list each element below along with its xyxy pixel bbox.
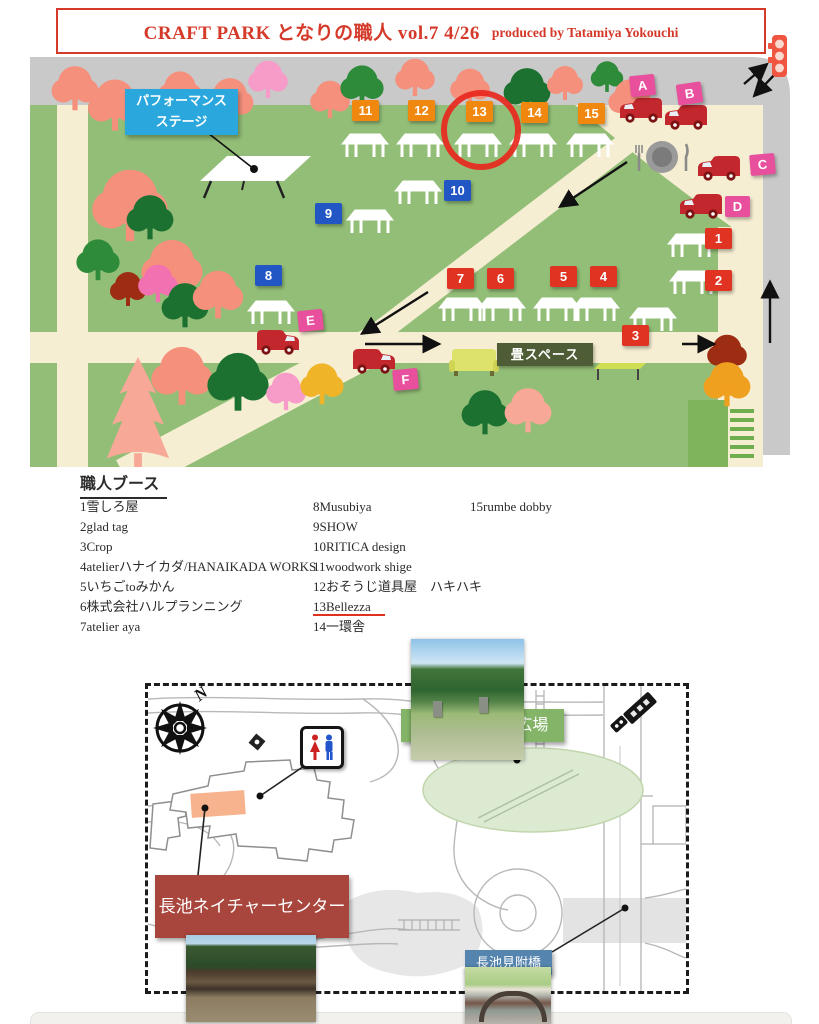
- vendor-item: 6株式会社ハルプランニング: [80, 597, 312, 617]
- vendor-item: 4atelierハナイカダ/HANAIKADA WORKS: [80, 557, 312, 577]
- booth-marker-D: D: [725, 196, 750, 217]
- stage-label-line2: ステージ: [125, 112, 238, 133]
- flyer-page: CRAFT PARK となりの職人 vol.7 4/26 produced by…: [0, 0, 819, 1024]
- vendor-list-title: 職人ブース: [80, 470, 167, 499]
- booth-marker-2: 2: [705, 270, 732, 291]
- vendor-item: 3Crop: [80, 537, 312, 557]
- booth-marker-B: B: [676, 81, 704, 105]
- booth-marker-F: F: [392, 368, 419, 391]
- booth-marker-6: 6: [487, 268, 514, 289]
- restroom-icon: [300, 726, 344, 769]
- tatami-space-label: 畳スペース: [497, 343, 593, 366]
- page-credit: produced by Tatamiya Yokouchi: [492, 21, 678, 41]
- building-outline: [150, 760, 354, 861]
- vendor-item: 10RITICA design: [313, 537, 549, 557]
- park-map: 11 12 13 14 15 10 9 8 7 6 5 4 1 2 3 A B …: [30, 57, 790, 467]
- booth-marker-3: 3: [622, 325, 649, 346]
- performance-stage-label: パフォーマンス ステージ: [125, 89, 238, 135]
- vendor-item: 1雪しろ屋: [80, 497, 312, 517]
- vendor-item: 14一環舎: [313, 617, 549, 637]
- vendor-column-3: 15rumbe dobby: [470, 497, 620, 517]
- vendor-item-bellezza: 13Bellezza: [313, 599, 385, 616]
- nature-center-photo: [186, 935, 316, 1022]
- booth-marker-13: 13: [466, 101, 493, 122]
- booth-marker-10: 10: [444, 180, 471, 201]
- vendor-item: 2glad tag: [80, 517, 312, 537]
- bus-stop-marker: [610, 691, 658, 733]
- booth-marker-12: 12: [408, 100, 435, 121]
- header-banner: CRAFT PARK となりの職人 vol.7 4/26 produced by…: [56, 8, 766, 54]
- vendor-item-highlighted: 13Bellezza: [313, 597, 549, 617]
- vendor-item: 15rumbe dobby: [470, 497, 620, 517]
- booth-marker-9: 9: [315, 203, 342, 224]
- pond-shape: [347, 890, 483, 976]
- bridge-photo: [465, 967, 551, 1024]
- vendor-column-1: 1雪しろ屋 2glad tag 3Crop 4atelierハナイカダ/HANA…: [80, 497, 312, 637]
- booth-marker-7: 7: [447, 268, 474, 289]
- booth-marker-1: 1: [705, 228, 732, 249]
- traffic-light-icon: [765, 31, 793, 87]
- page-bottom-band: [30, 1012, 792, 1024]
- booth-marker-15: 15: [578, 103, 605, 124]
- small-building-marker: [249, 734, 266, 751]
- booth-marker-11: 11: [352, 100, 379, 121]
- booth-marker-5: 5: [550, 266, 577, 287]
- stage-label-line1: パフォーマンス: [125, 91, 238, 112]
- restroom-male-figure: [326, 735, 333, 761]
- booth-marker-8: 8: [255, 265, 282, 286]
- booth-marker-E: E: [297, 309, 324, 332]
- vendor-column-2: 8Musubiya 9SHOW 10RITICA design 11woodwo…: [313, 497, 549, 637]
- booth-marker-A: A: [629, 74, 656, 97]
- vendor-item: 12おそうじ道具屋 ハキハキ: [313, 577, 549, 597]
- vendor-list: 職人ブース 1雪しろ屋 2glad tag 3Crop 4atelierハナイカ…: [80, 470, 770, 640]
- plaza-oval: [423, 748, 643, 832]
- location-map: N CRAFT PARK広場 長池ネイチャーセンター 長池見附橋: [145, 683, 689, 994]
- booth-marker-4: 4: [590, 266, 617, 287]
- vendor-item: 7atelier aya: [80, 617, 312, 637]
- vendor-item: 5いちごtoみかん: [80, 577, 312, 597]
- booth-marker-14: 14: [521, 102, 548, 123]
- nature-center-highlight: [190, 790, 246, 818]
- nature-center-label: 長池ネイチャーセンター: [155, 875, 349, 938]
- page-title: CRAFT PARK となりの職人 vol.7 4/26: [144, 18, 480, 45]
- vendor-item: 9SHOW: [313, 517, 549, 537]
- booth-marker-C: C: [749, 153, 776, 176]
- park-photo: [411, 639, 524, 760]
- vendor-item: 11woodwork shige: [313, 557, 549, 577]
- restroom-female-figure: [310, 735, 320, 761]
